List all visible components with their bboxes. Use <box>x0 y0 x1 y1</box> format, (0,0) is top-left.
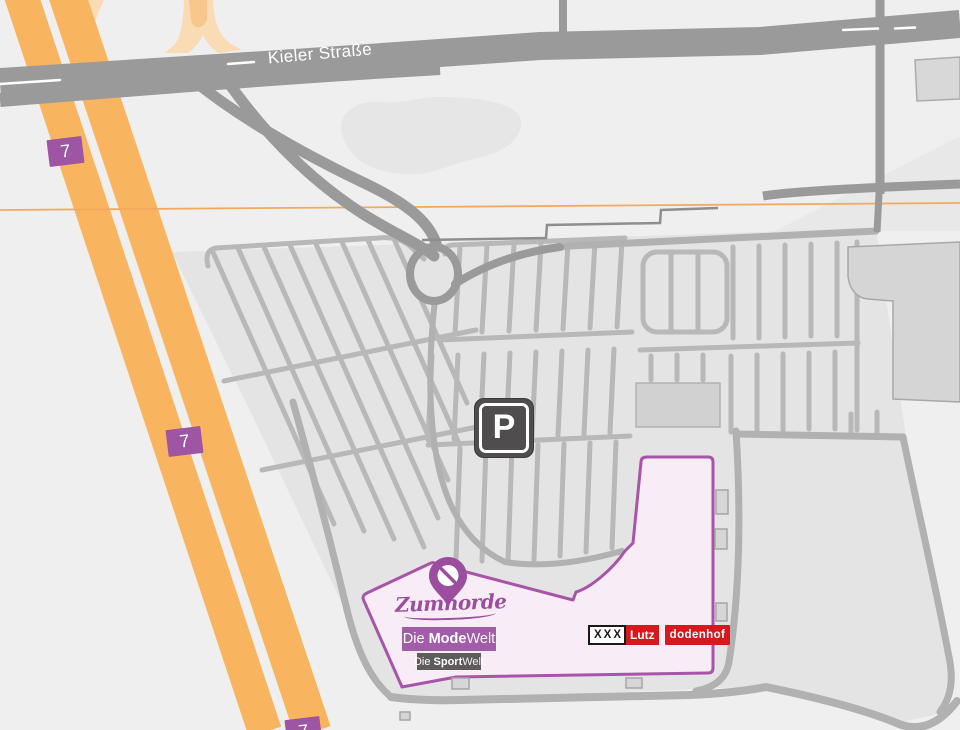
parking-sign-letter: P <box>493 410 516 444</box>
logo-xxxlutz-xxx: XXX <box>588 625 626 645</box>
highway-badge-a7-middle: 7 <box>165 426 203 457</box>
logo-xxxlutz-lutz: Lutz <box>626 625 659 645</box>
logo-dodenhof: dodenhof <box>665 625 731 645</box>
sportwelt-prefix: Die <box>414 656 434 668</box>
site-map: Kieler Straße 7 7 7 P Zumnorde Die ModeW… <box>0 0 960 730</box>
highway-badge-a7-top: 7 <box>46 136 84 167</box>
store-label-modewelt: Die ModeWelt <box>402 627 496 651</box>
building-center <box>636 383 720 427</box>
store-logos: XXX Lutz dodenhof <box>588 625 730 645</box>
sportwelt-bold: Sport <box>434 656 463 668</box>
sportwelt-suffix: Welt <box>462 656 484 668</box>
parking-sign-frame: P <box>479 403 529 453</box>
parking-sign: P <box>474 398 534 458</box>
modewelt-bold: Mode <box>429 631 467 647</box>
map-canvas <box>0 0 960 730</box>
modewelt-suffix: Welt <box>466 631 495 647</box>
store-label-sportwelt: Die SportWelt <box>417 653 481 670</box>
modewelt-prefix: Die <box>403 631 429 647</box>
building-top-right <box>915 57 960 101</box>
